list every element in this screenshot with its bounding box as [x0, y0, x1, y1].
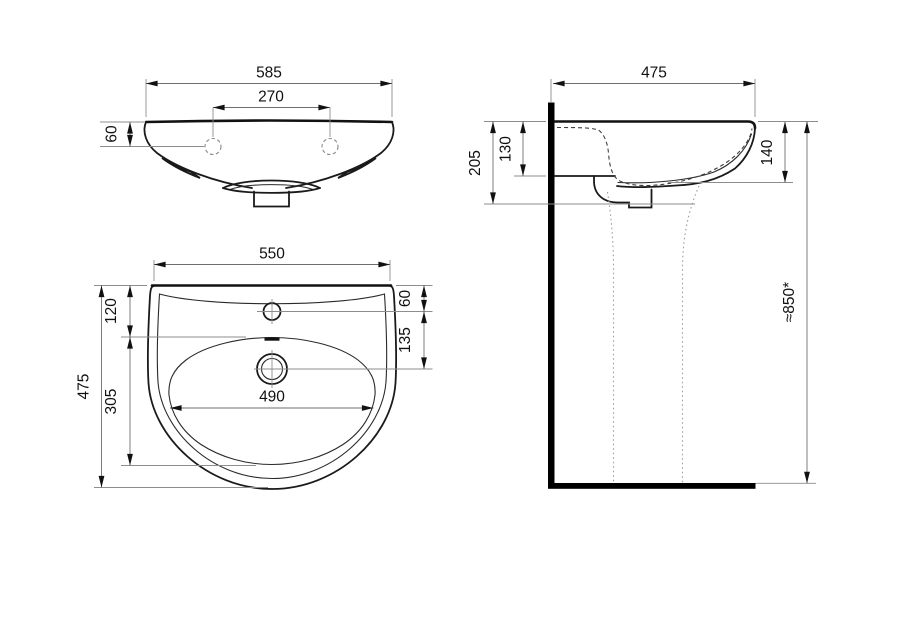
wall [548, 103, 555, 489]
side-dim-205-label: 205 [467, 150, 484, 176]
side-rim-top [555, 122, 756, 129]
front-right-fin [338, 158, 376, 178]
front-drain-flange-bottom [223, 188, 320, 193]
side-dim-140-label: 140 [759, 139, 776, 165]
side-dim-850-label: ≈850* [781, 282, 798, 322]
side-section-view: 475 205 130 140 ≈850* [467, 65, 818, 489]
washbasin-technical-drawing: 585 270 60 550 [0, 0, 900, 636]
plan-dim-475-label: 475 [76, 374, 93, 400]
plan-view: 550 475 120 305 60 135 490 [76, 246, 433, 490]
pedestal-back-line [608, 192, 614, 483]
front-basin-rim-edge [146, 121, 392, 123]
front-tap-hole-left [205, 139, 221, 155]
plan-dim-550-label: 550 [259, 246, 285, 263]
front-tap-hole-right [322, 139, 338, 155]
side-dim-130-label: 130 [498, 136, 515, 162]
front-dim-585-label: 585 [256, 65, 282, 82]
front-dim-270-label: 270 [258, 89, 284, 106]
floor [548, 483, 756, 489]
front-left-fin [162, 158, 200, 178]
front-elevation-view: 585 270 60 [100, 65, 394, 207]
plan-dim-135-label: 135 [397, 327, 414, 353]
side-trap-housing [594, 176, 652, 208]
plan-dim-60-label: 60 [397, 290, 414, 308]
pedestal-front-line [683, 186, 700, 483]
plan-dim-490-label: 490 [259, 389, 285, 406]
drawing-svg: 585 270 60 550 [0, 0, 900, 636]
front-dim-60-label: 60 [104, 125, 121, 143]
plan-dim-120-label: 120 [103, 298, 120, 324]
side-front-inner-edge [618, 134, 752, 183]
side-dim-475-label: 475 [641, 65, 667, 82]
plan-dim-305-label: 305 [103, 389, 120, 415]
